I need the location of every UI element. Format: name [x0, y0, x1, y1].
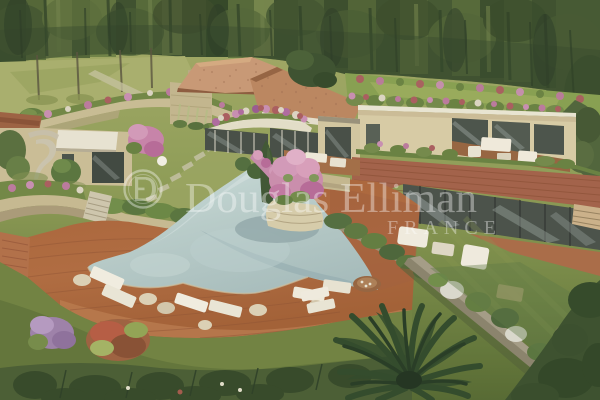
svg-text:FRANCE: FRANCE	[387, 217, 502, 239]
svg-text:Douglas Elliman: Douglas Elliman	[185, 176, 477, 222]
